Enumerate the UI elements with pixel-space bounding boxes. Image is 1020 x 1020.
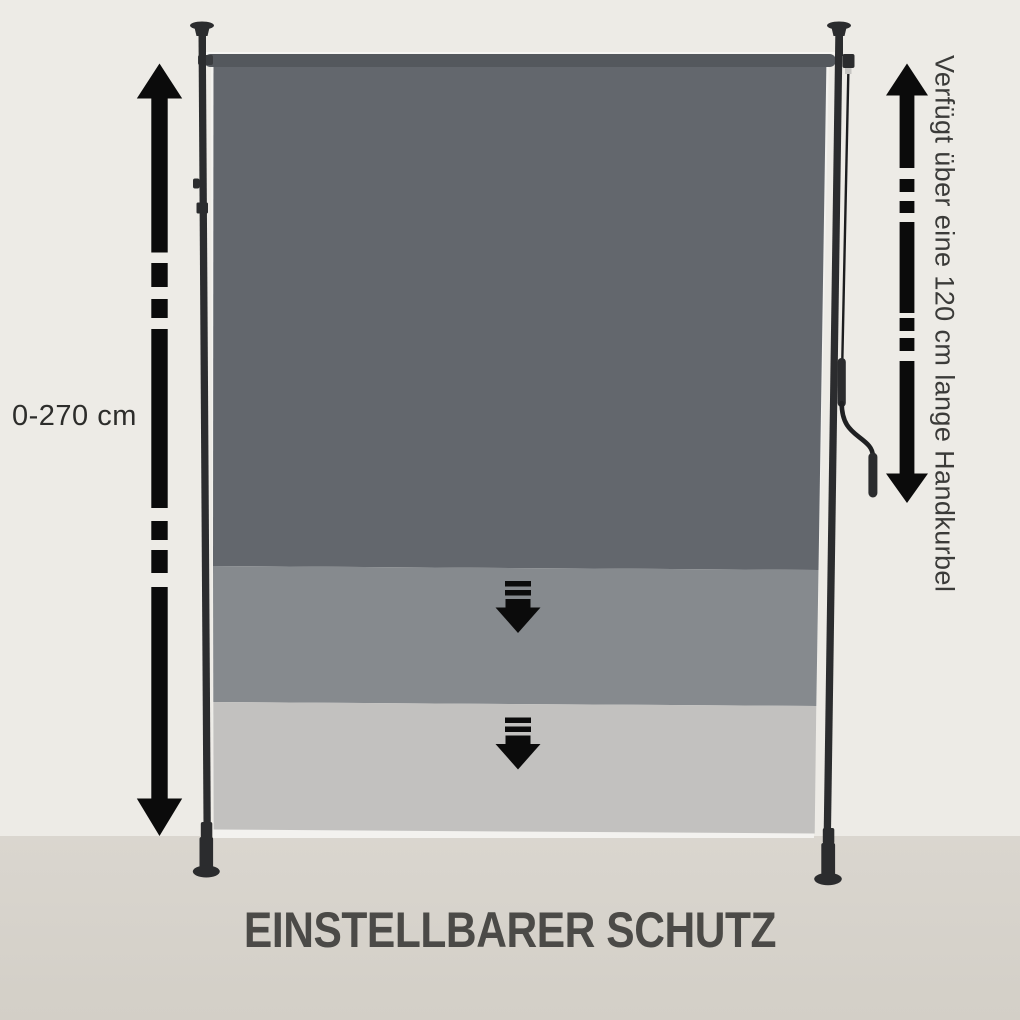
right-foot-body (821, 843, 835, 875)
crank-gearbox (843, 54, 855, 68)
fabric-section-medium (213, 566, 819, 706)
right-foot-collar (823, 828, 835, 844)
roller-tube (204, 54, 836, 67)
crank-handle (868, 453, 877, 498)
right-foot-base (814, 873, 842, 885)
left-pole-collar (197, 203, 209, 214)
fabric-section-dark (213, 57, 827, 571)
left-foot-collar (201, 822, 213, 838)
crank-gearbox-fitting (845, 68, 852, 74)
left-pole-shaft (199, 35, 211, 826)
height-range-label: 0-270 cm (12, 401, 137, 433)
blind-diagram-graphic (0, 0, 1020, 1020)
left-foot-body (200, 837, 214, 868)
left-pole-clamp-knob (193, 179, 200, 189)
crank-length-note: Verfügt über eine 120 cm lange Handkurbe… (929, 55, 959, 592)
crank-arm (842, 403, 873, 456)
product-illustration-scene: 0-270 cm Verfügt über eine 120 cm lange … (0, 0, 1020, 1020)
crank-length-arrow-icon (886, 64, 928, 504)
height-range-arrow-icon (137, 64, 182, 837)
caption-title: EINSTELLBARER SCHUTZ (77, 901, 944, 959)
left-foot-base (193, 866, 220, 878)
crank-cord (842, 74, 848, 361)
crank-rod (838, 358, 846, 407)
